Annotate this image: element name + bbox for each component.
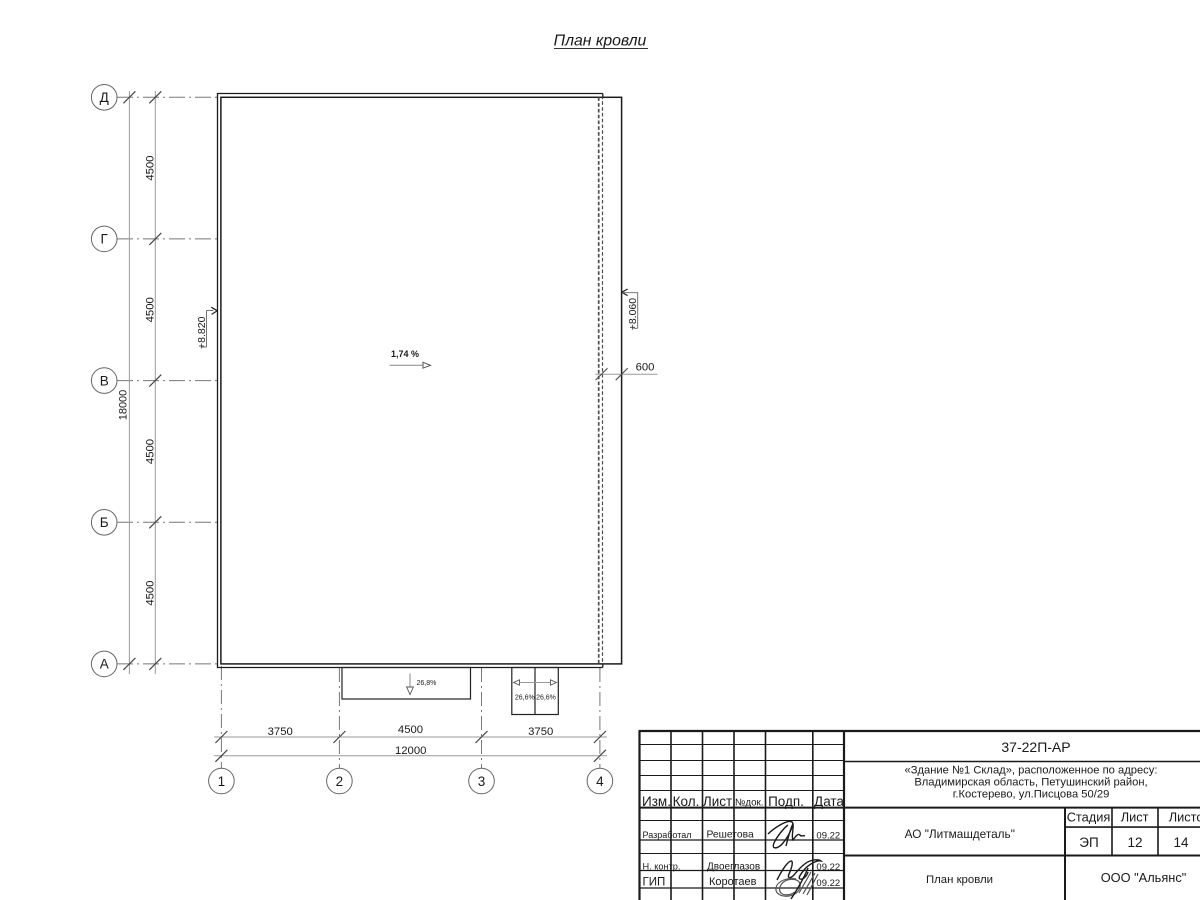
svg-text:№док.: №док. xyxy=(735,797,764,808)
svg-text:Д: Д xyxy=(100,90,109,105)
svg-text:г.Костерево, ул.Писцова 50/29: г.Костерево, ул.Писцова 50/29 xyxy=(953,789,1110,801)
svg-text:4500: 4500 xyxy=(398,724,423,736)
svg-text:09.22: 09.22 xyxy=(816,878,840,889)
svg-text:АО "Литмашдеталь": АО "Литмашдеталь" xyxy=(905,827,1015,841)
svg-text:4500: 4500 xyxy=(144,581,156,606)
svg-text:Изм.: Изм. xyxy=(642,794,671,809)
svg-text:Дата: Дата xyxy=(814,794,844,809)
svg-text:Лист: Лист xyxy=(703,794,732,809)
svg-text:Листов: Листов xyxy=(1169,810,1200,825)
svg-text:«Здание №1 Склад», расположенн: «Здание №1 Склад», расположенное по адре… xyxy=(905,765,1158,777)
svg-text:ЭП: ЭП xyxy=(1079,835,1098,850)
svg-text:В: В xyxy=(100,373,109,388)
svg-text:Н. контр.: Н. контр. xyxy=(643,862,681,872)
svg-text:ГИП: ГИП xyxy=(643,877,666,889)
svg-text:4500: 4500 xyxy=(144,439,156,464)
svg-text:18000: 18000 xyxy=(118,390,130,421)
svg-text:План кровли: План кровли xyxy=(554,33,647,50)
svg-text:Коротаев: Коротаев xyxy=(709,876,757,888)
svg-text:3750: 3750 xyxy=(528,726,553,738)
svg-text:Разработал: Разработал xyxy=(643,830,692,840)
svg-text:3750: 3750 xyxy=(268,726,293,738)
svg-text:26,8%: 26,8% xyxy=(417,680,437,687)
svg-text:14: 14 xyxy=(1173,835,1189,850)
svg-text:Кол.: Кол. xyxy=(673,794,700,809)
svg-text:1,74 %: 1,74 % xyxy=(391,349,419,359)
svg-text:26,6%: 26,6% xyxy=(536,694,556,701)
svg-text:Стадия: Стадия xyxy=(1067,810,1111,825)
svg-text:Двоеглазов: Двоеглазов xyxy=(707,862,760,873)
svg-text:4: 4 xyxy=(596,774,604,789)
svg-text:Б: Б xyxy=(100,515,109,530)
svg-text:4500: 4500 xyxy=(144,297,156,322)
svg-text:Лист: Лист xyxy=(1121,810,1149,825)
svg-text:+8.060: +8.060 xyxy=(627,298,639,331)
svg-text:37-22П-АР: 37-22П-АР xyxy=(1001,739,1070,755)
svg-text:600: 600 xyxy=(636,362,655,374)
svg-text:Решетова: Решетова xyxy=(707,830,754,841)
svg-text:Владимирская область, Петушинс: Владимирская область, Петушинский район, xyxy=(914,777,1147,789)
svg-text:2: 2 xyxy=(336,774,344,789)
svg-text:12000: 12000 xyxy=(395,745,426,757)
svg-text:1: 1 xyxy=(218,774,226,789)
svg-text:+8.820: +8.820 xyxy=(196,316,208,349)
svg-text:09.22: 09.22 xyxy=(816,862,840,873)
svg-text:09.22: 09.22 xyxy=(816,831,840,842)
svg-text:А: А xyxy=(100,657,109,672)
svg-text:Подп.: Подп. xyxy=(768,794,804,809)
svg-text:3: 3 xyxy=(478,774,486,789)
svg-text:Г: Г xyxy=(101,232,109,247)
svg-text:12: 12 xyxy=(1127,835,1142,850)
svg-text:ООО "Альянс": ООО "Альянс" xyxy=(1101,870,1187,885)
svg-text:26,6%: 26,6% xyxy=(515,694,535,701)
svg-text:План кровли: План кровли xyxy=(926,874,993,886)
svg-text:4500: 4500 xyxy=(144,156,156,181)
